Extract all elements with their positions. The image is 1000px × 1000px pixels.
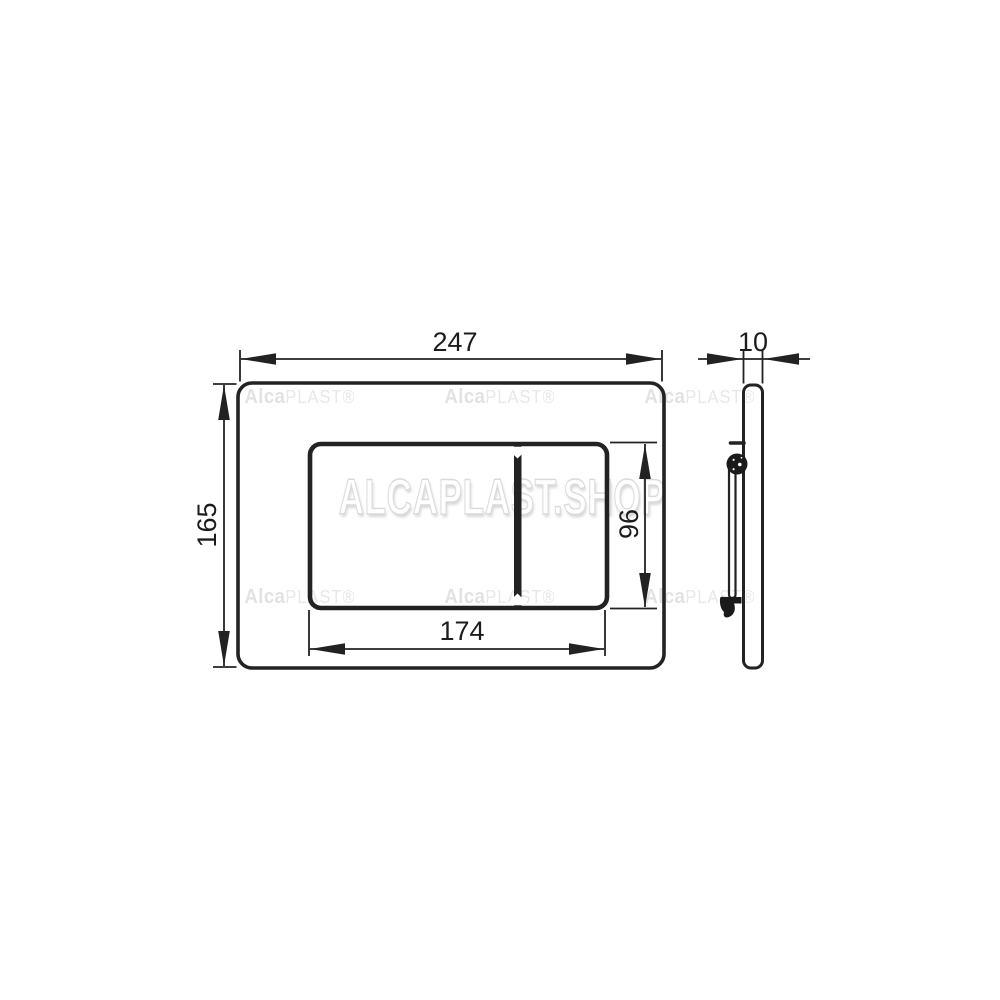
flush-plate-technical-drawing: AlcaPLAST® AlcaPLAST® AlcaPLAST® AlcaPLA… bbox=[0, 0, 1000, 1000]
arrowhead-down bbox=[218, 631, 230, 666]
arrowhead-right bbox=[626, 353, 661, 365]
side-mount-wheel bbox=[727, 454, 748, 475]
dimension-label-plate-depth: 10 bbox=[703, 328, 803, 356]
dimension-label-plate-height: 165 bbox=[193, 460, 221, 590]
divider-bottom-notch bbox=[506, 594, 530, 606]
wheel-dot bbox=[733, 468, 735, 470]
arrowhead-left bbox=[241, 353, 276, 365]
arrowhead-right bbox=[569, 643, 604, 655]
buttons-outline bbox=[310, 444, 607, 608]
dimension-label-plate-width: 247 bbox=[390, 328, 520, 356]
side-bottom-hook bbox=[720, 597, 742, 618]
divider-top-notch bbox=[506, 447, 530, 459]
wheel-dot bbox=[733, 459, 735, 461]
dimension-label-buttons-height: 96 bbox=[615, 459, 643, 589]
arrowhead-left bbox=[310, 643, 345, 655]
button-divider bbox=[514, 446, 522, 606]
arrowhead-up bbox=[218, 385, 230, 420]
side-plate-profile bbox=[744, 385, 763, 668]
side-view bbox=[720, 385, 763, 668]
wheel-dot bbox=[741, 457, 743, 459]
wheel-dot bbox=[738, 463, 742, 467]
side-frame-strip bbox=[729, 464, 736, 598]
drawing-canvas bbox=[0, 0, 1000, 1000]
dimension-label-buttons-width: 174 bbox=[397, 617, 527, 645]
